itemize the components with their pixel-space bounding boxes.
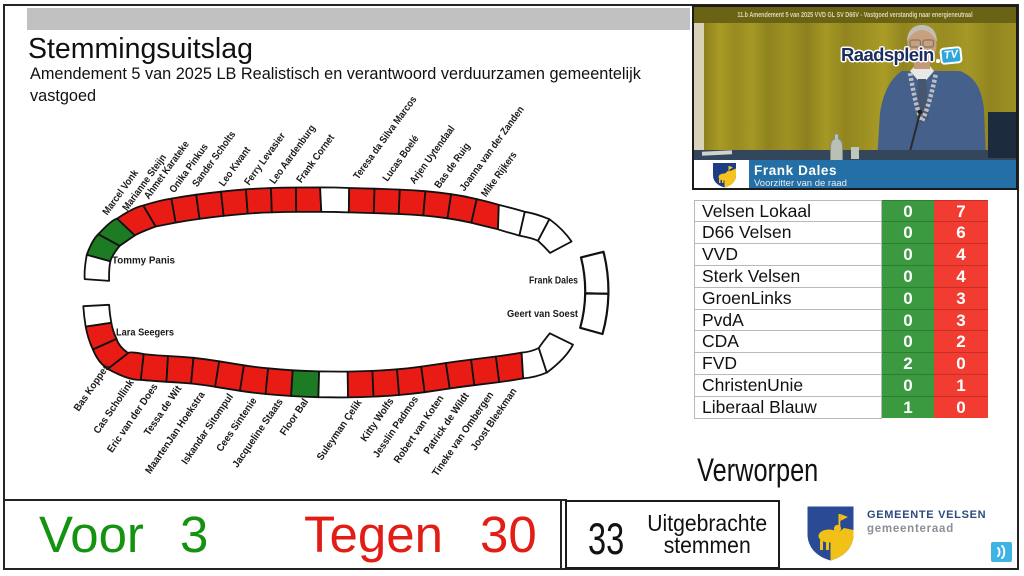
svg-text:Jacqueline Staats: Jacqueline Staats	[231, 397, 286, 470]
svg-text:Frank Dales: Frank Dales	[529, 276, 578, 287]
svg-text:Geert van Soest: Geert van Soest	[507, 309, 579, 320]
svg-text:Suleyman Çelik: Suleyman Çelik	[315, 398, 364, 463]
svg-text:Leo Aardenburg: Leo Aardenburg	[268, 123, 318, 186]
svg-text:Lara Seegers: Lara Seegers	[116, 328, 174, 339]
svg-text:Tommy Panis: Tommy Panis	[112, 256, 175, 267]
svg-text:Bas Koppes: Bas Koppes	[72, 362, 112, 414]
